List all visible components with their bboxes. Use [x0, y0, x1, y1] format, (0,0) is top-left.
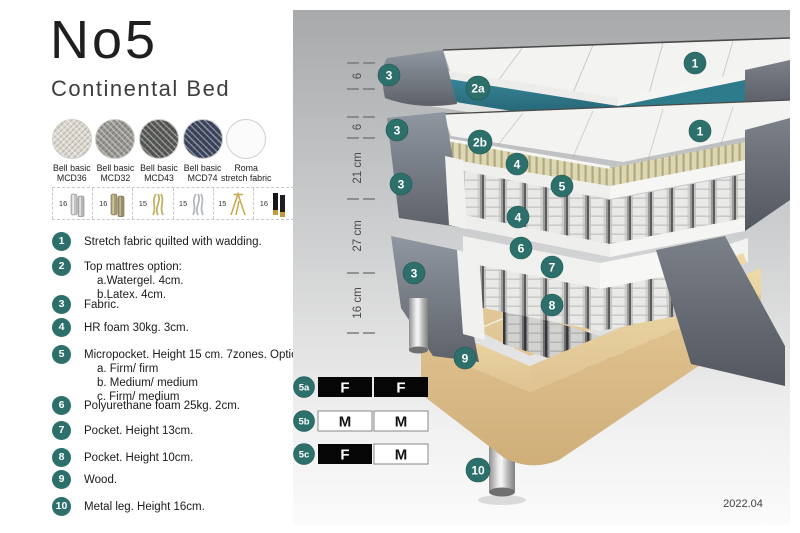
legend-item-10: 10 Metal leg. Height 16cm.: [52, 497, 290, 516]
leg-options-row: 16 16 15: [52, 187, 294, 220]
leg-option-5: 15: [213, 188, 253, 219]
fabric-swatch-roma: Romastretch fabric: [224, 119, 268, 183]
black-gold-leg-icon: [270, 191, 287, 217]
svg-text:3: 3: [411, 267, 418, 281]
fabric-swatch-circle: [183, 119, 223, 159]
fabric-swatch-mcd43: Bell basicMCD43: [137, 119, 181, 183]
page-title: No5: [50, 12, 158, 68]
svg-text:6: 6: [352, 73, 364, 79]
bed-cutaway-svg: 6 6 21 cm 27 cm 16 cm 1 3 2a 1 3 2b 4 3 …: [293, 10, 790, 525]
svg-text:4: 4: [514, 158, 521, 172]
version-label: 2022.04: [723, 498, 763, 510]
legend-item-6: 6 Polyurethane foam 25kg. 2cm.: [52, 396, 290, 415]
fabric-swatch-mcd36: Bell basicMCD36: [50, 119, 94, 183]
bed-cutaway-diagram: 6 6 21 cm 27 cm 16 cm 1 3 2a 1 3 2b 4 3 …: [293, 10, 790, 525]
svg-text:2b: 2b: [473, 136, 487, 150]
svg-text:3: 3: [394, 124, 401, 138]
diagram-badge-3-side: 3: [390, 173, 412, 195]
diagram-badge-10: 10: [466, 458, 490, 482]
diagram-badge-8: 8: [541, 294, 563, 316]
legend-item-3: 3 Fabric.: [52, 295, 290, 314]
spec-sheet-page: No5 Continental Bed Bell basicMCD36 Bell…: [0, 0, 800, 533]
legend-badge: 2: [52, 257, 71, 276]
svg-text:F: F: [340, 380, 349, 397]
diagram-badge-1-mattress: 1: [689, 120, 711, 142]
svg-text:8: 8: [549, 299, 556, 313]
diagram-badge-1-top: 1: [684, 52, 706, 74]
legend-badge: 6: [52, 396, 71, 415]
legend-badge: 10: [52, 497, 71, 516]
leg-option-6: 16: [253, 188, 294, 219]
legend-badge: 9: [52, 470, 71, 489]
svg-text:5a: 5a: [299, 383, 310, 394]
legend-badge: 5: [52, 345, 71, 364]
diagram-badge-6: 6: [510, 237, 532, 259]
diagram-badge-2a: 2a: [466, 76, 490, 100]
fabric-swatch-circle: [139, 119, 179, 159]
svg-text:2a: 2a: [471, 82, 485, 96]
diagram-badge-7: 7: [541, 256, 563, 278]
diagram-badge-4-top: 4: [506, 153, 528, 175]
svg-text:3: 3: [386, 69, 393, 83]
svg-text:7: 7: [549, 261, 556, 275]
legend-badge: 3: [52, 295, 71, 314]
left-column: No5 Continental Bed Bell basicMCD36 Bell…: [0, 0, 293, 533]
svg-text:5: 5: [559, 180, 566, 194]
svg-text:3: 3: [398, 178, 405, 192]
firmness-table: 5a F F 5b M M 5c F M: [294, 377, 429, 465]
svg-text:M: M: [395, 447, 408, 464]
leg-option-3: 15: [132, 188, 172, 219]
svg-text:4: 4: [515, 211, 522, 225]
cylinder-silver-leg-icon: [69, 191, 86, 217]
svg-text:F: F: [340, 447, 349, 464]
legend-item-9: 9 Wood.: [52, 470, 290, 489]
fabric-swatch-circle: [52, 119, 92, 159]
svg-text:6: 6: [518, 242, 525, 256]
fabric-swatches: Bell basicMCD36 Bell basicMCD32 Bell bas…: [50, 119, 268, 183]
hairpin-gold-leg-icon: [228, 191, 248, 217]
legend-item-1: 1 Stretch fabric quilted with wadding.: [52, 232, 290, 251]
svg-text:F: F: [396, 380, 405, 397]
diagram-badge-2b: 2b: [468, 130, 492, 154]
cylinder-bronze-leg-icon: [109, 191, 126, 217]
svg-text:1: 1: [692, 57, 699, 71]
svg-text:M: M: [395, 414, 408, 431]
twisted-silver-leg-icon: [189, 191, 207, 217]
diagram-badge-3-mattress: 3: [386, 119, 408, 141]
svg-text:21 cm: 21 cm: [352, 152, 364, 183]
leg-option-4: 15: [173, 188, 213, 219]
twisted-gold-leg-icon: [149, 191, 167, 217]
svg-text:1: 1: [697, 125, 704, 139]
leg-option-1: 16: [52, 188, 92, 219]
diagram-badge-4-bottom: 4: [507, 206, 529, 228]
svg-text:10: 10: [471, 464, 485, 478]
legend-item-8: 8 Pocket. Height 10cm.: [52, 448, 290, 467]
legend-badge: 1: [52, 232, 71, 251]
diagram-badge-9: 9: [454, 347, 476, 369]
fabric-swatch-circle: [226, 119, 266, 159]
svg-text:9: 9: [462, 352, 469, 366]
leg-option-2: 16: [92, 188, 132, 219]
fabric-swatch-circle: [95, 119, 135, 159]
legend-item-7: 7 Pocket. Height 13cm.: [52, 421, 290, 440]
fabric-swatch-mcd32: Bell basicMCD32: [94, 119, 138, 183]
svg-text:6: 6: [352, 124, 364, 130]
fabric-swatch-mcd74: Bell basicMCD74: [181, 119, 225, 183]
legend-badge: 8: [52, 448, 71, 467]
page-subtitle: Continental Bed: [51, 76, 230, 102]
metal-leg-back: [409, 298, 428, 354]
svg-text:5c: 5c: [299, 450, 310, 461]
diagram-badge-5: 5: [551, 175, 573, 197]
svg-text:M: M: [339, 414, 352, 431]
svg-text:27 cm: 27 cm: [352, 220, 364, 251]
diagram-badge-3-base: 3: [403, 262, 425, 284]
legend-badge: 4: [52, 318, 71, 337]
svg-text:16 cm: 16 cm: [352, 287, 364, 318]
diagram-badge-3-topper: 3: [378, 64, 400, 86]
svg-text:5b: 5b: [298, 417, 309, 428]
legend-item-4: 4 HR foam 30kg. 3cm.: [52, 318, 290, 337]
legend-badge: 7: [52, 421, 71, 440]
